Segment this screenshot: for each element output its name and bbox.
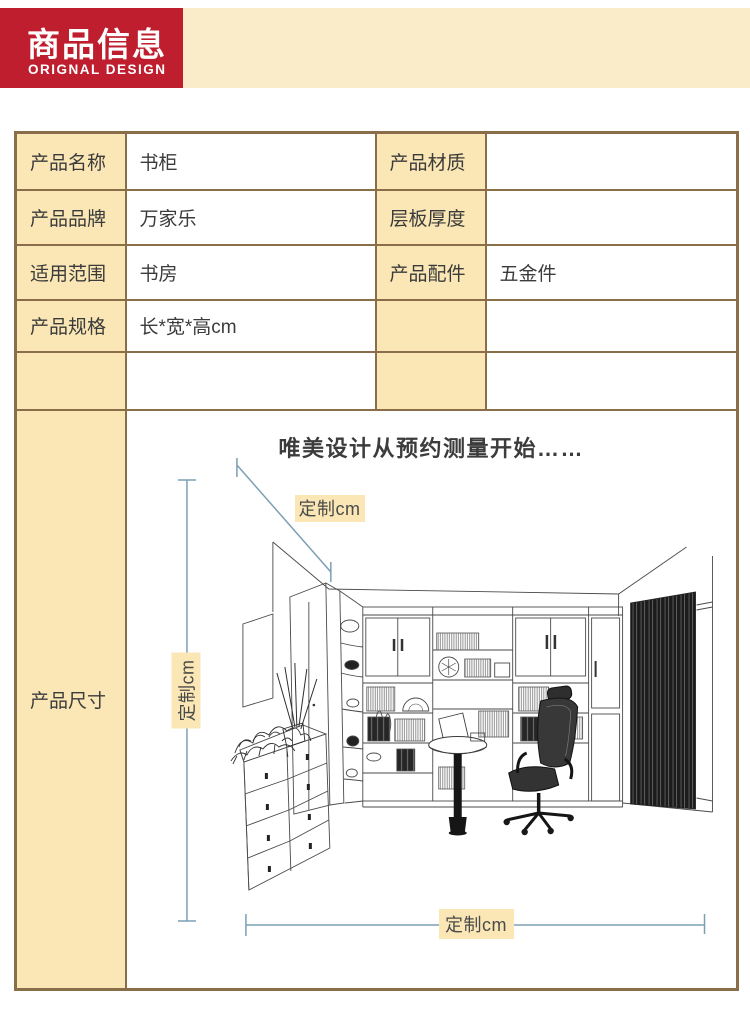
desk <box>428 713 486 836</box>
spec-value-cell: 五金件 <box>486 245 738 300</box>
table-row: 适用范围 书房 产品配件 五金件 <box>16 245 738 300</box>
header-red-banner: 商品信息 ORIGNAL DESIGN <box>0 8 183 88</box>
spec-label-cell: 适用范围 <box>16 245 126 300</box>
office-chair <box>503 685 577 835</box>
spec-label-cell: 产品材质 <box>376 133 486 190</box>
spec-label-cell <box>16 352 126 410</box>
table-row: 产品名称 书柜 产品材质 <box>16 133 738 190</box>
header-cream-band <box>183 8 750 88</box>
spec-value-cell <box>486 190 738 245</box>
spec-label-cell: 产品配件 <box>376 245 486 300</box>
spec-value-cell: 书柜 <box>126 133 376 190</box>
spec-label-cell <box>376 352 486 410</box>
spec-value-cell: 万家乐 <box>126 190 376 245</box>
curtain <box>630 592 695 809</box>
spec-label-cell: 层板厚度 <box>376 190 486 245</box>
table-row <box>16 352 738 410</box>
page-subtitle: ORIGNAL DESIGN <box>28 62 167 77</box>
spec-value-cell <box>486 133 738 190</box>
dimension-row: 产品尺寸 唯美设计从预约测量开始…… <box>16 410 738 990</box>
dimension-label-vertical: 定制cm <box>171 652 200 728</box>
figure-caption: 唯美设计从预约测量开始…… <box>127 431 737 463</box>
dimension-label-diagonal: 定制cm <box>295 495 365 522</box>
page-title: 商品信息 <box>27 18 167 66</box>
dimension-label-horizontal: 定制cm <box>439 909 514 939</box>
product-spec-table: 产品名称 书柜 产品材质 产品品牌 万家乐 层板厚度 适用范围 书房 产品配件 … <box>14 131 739 991</box>
table-row: 产品品牌 万家乐 层板厚度 <box>16 190 738 245</box>
spec-value-cell: 长*宽*高cm <box>126 300 376 352</box>
spec-value-cell <box>486 352 738 410</box>
bookshelf-wall <box>362 607 622 807</box>
spec-label-cell: 产品品牌 <box>16 190 126 245</box>
spec-value-cell <box>126 352 376 410</box>
corner-cabinet <box>289 583 362 814</box>
spec-label-cell <box>376 300 486 352</box>
dimension-figure-cell: 唯美设计从预约测量开始…… <box>126 410 738 990</box>
dimension-lines <box>177 458 704 936</box>
spec-label-cell: 产品规格 <box>16 300 126 352</box>
chest-of-drawers <box>239 725 329 890</box>
room-sketch-illustration <box>127 411 737 988</box>
spec-value-cell <box>486 300 738 352</box>
spec-value-cell: 书房 <box>126 245 376 300</box>
spec-label-cell: 产品名称 <box>16 133 126 190</box>
product-info-page: 商品信息 ORIGNAL DESIGN 产品名称 书柜 产品材质 产品品牌 万家… <box>0 0 750 1016</box>
dimension-row-label: 产品尺寸 <box>16 410 126 990</box>
table-row: 产品规格 长*宽*高cm <box>16 300 738 352</box>
